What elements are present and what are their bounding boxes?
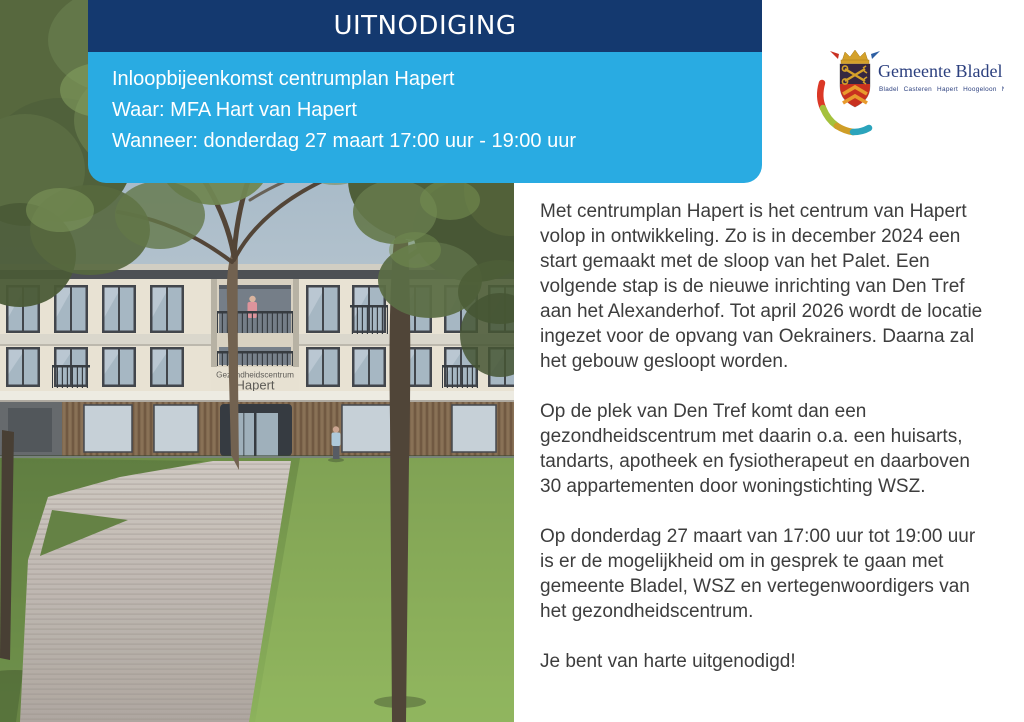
invitation-card: UITNODIGING Inloopbijeenkomst centrumpla…: [88, 0, 762, 183]
paragraph-meeting: Op donderdag 27 maart van 17:00 uur tot …: [540, 524, 1010, 624]
header-bar: UITNODIGING: [88, 0, 762, 52]
logo-villages: Bladel Casteren Hapert Hoogeloon Neterse…: [879, 86, 1004, 93]
coat-of-arms-icon: [830, 50, 880, 107]
paragraph-plans: Op de plek van Den Tref komt dan een gez…: [540, 399, 1010, 499]
detail-line-where: Waar: MFA Hart van Hapert: [112, 95, 762, 126]
detail-line-when: Wanneer: donderdag 27 maart 17:00 uur - …: [112, 126, 762, 157]
paragraph-intro: Met centrumplan Hapert is het centrum va…: [540, 199, 1010, 374]
invitation-details: Inloopbijeenkomst centrumplan Hapert Waa…: [88, 52, 762, 183]
logo-wordmark: Gemeente Bladel: [878, 61, 1002, 81]
gemeente-bladel-logo: Gemeente Bladel Bladel Casteren Hapert H…: [812, 45, 1004, 147]
flyer-page: Gezondheidscentrum Hapert: [0, 0, 1024, 722]
body-text: Met centrumplan Hapert is het centrum va…: [540, 199, 1010, 699]
page-title: UITNODIGING: [333, 11, 516, 41]
detail-line-event: Inloopbijeenkomst centrumplan Hapert: [112, 64, 762, 95]
paragraph-invite: Je bent van harte uitgenodigd!: [540, 649, 1010, 674]
